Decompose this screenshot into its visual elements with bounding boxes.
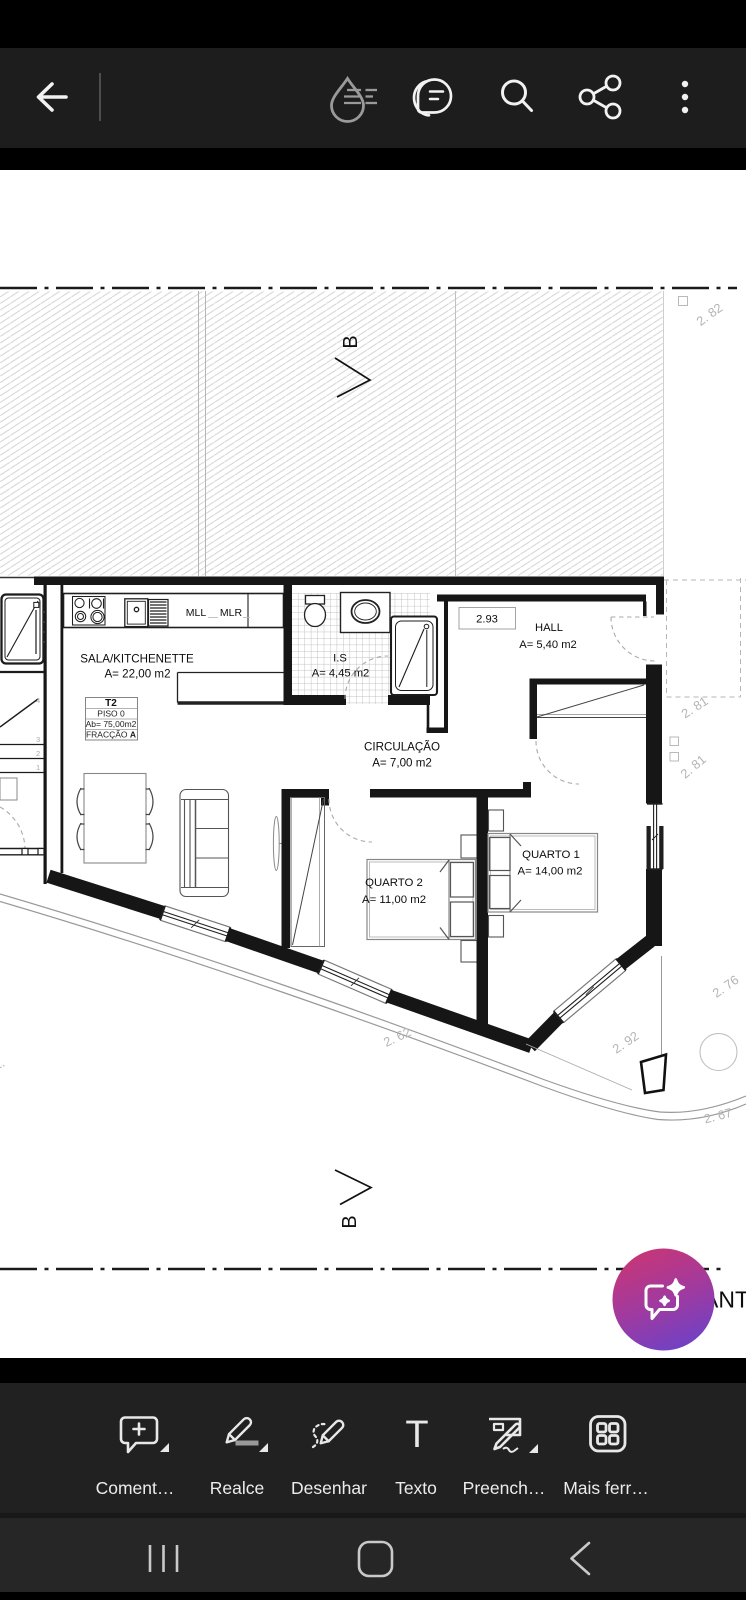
svg-text:MLL: MLL xyxy=(186,607,207,619)
svg-text:MLR: MLR xyxy=(220,607,243,619)
svg-text:FRACÇÃO A: FRACÇÃO A xyxy=(86,730,136,740)
svg-text:A= 4,45 m2: A= 4,45 m2 xyxy=(312,668,370,680)
svg-text:Desenhar: Desenhar xyxy=(291,1478,367,1498)
svg-text:SALA/KITCHENETTE: SALA/KITCHENETTE xyxy=(80,653,194,666)
svg-text:Ab= 75,00m2: Ab= 75,00m2 xyxy=(86,719,137,729)
svg-text:I.S: I.S xyxy=(333,653,347,665)
svg-text:A= 5,40 m2: A= 5,40 m2 xyxy=(519,639,577,651)
svg-text:B: B xyxy=(339,1215,361,1228)
svg-text:1: 1 xyxy=(36,763,40,772)
svg-text:4: 4 xyxy=(36,696,40,705)
svg-text:HALL: HALL xyxy=(535,622,563,634)
svg-text:Preench…: Preench… xyxy=(463,1478,546,1498)
svg-text:Mais ferr…: Mais ferr… xyxy=(563,1478,649,1498)
svg-text:Texto: Texto xyxy=(395,1478,437,1498)
svg-text:T: T xyxy=(405,1414,428,1456)
svg-text:A= 14,00 m2: A= 14,00 m2 xyxy=(518,866,583,878)
svg-text:3: 3 xyxy=(36,735,40,744)
svg-text:A= 7,00 m2: A= 7,00 m2 xyxy=(372,757,432,770)
svg-text:CIRCULAÇÃO: CIRCULAÇÃO xyxy=(364,741,440,754)
svg-text:Realce: Realce xyxy=(210,1478,264,1498)
svg-text:QUARTO 1: QUARTO 1 xyxy=(522,849,580,861)
svg-text:2: 2 xyxy=(36,749,40,758)
svg-text:B: B xyxy=(340,335,362,348)
svg-text:QUARTO 2: QUARTO 2 xyxy=(365,877,423,889)
svg-text:A= 22,00 m2: A= 22,00 m2 xyxy=(104,668,170,681)
svg-text:Coment…: Coment… xyxy=(96,1478,175,1498)
svg-text:A= 11,00 m2: A= 11,00 m2 xyxy=(362,894,426,906)
svg-text:T2: T2 xyxy=(105,698,117,709)
svg-text:2.93: 2.93 xyxy=(476,614,498,626)
svg-text:PISO 0: PISO 0 xyxy=(97,709,125,719)
